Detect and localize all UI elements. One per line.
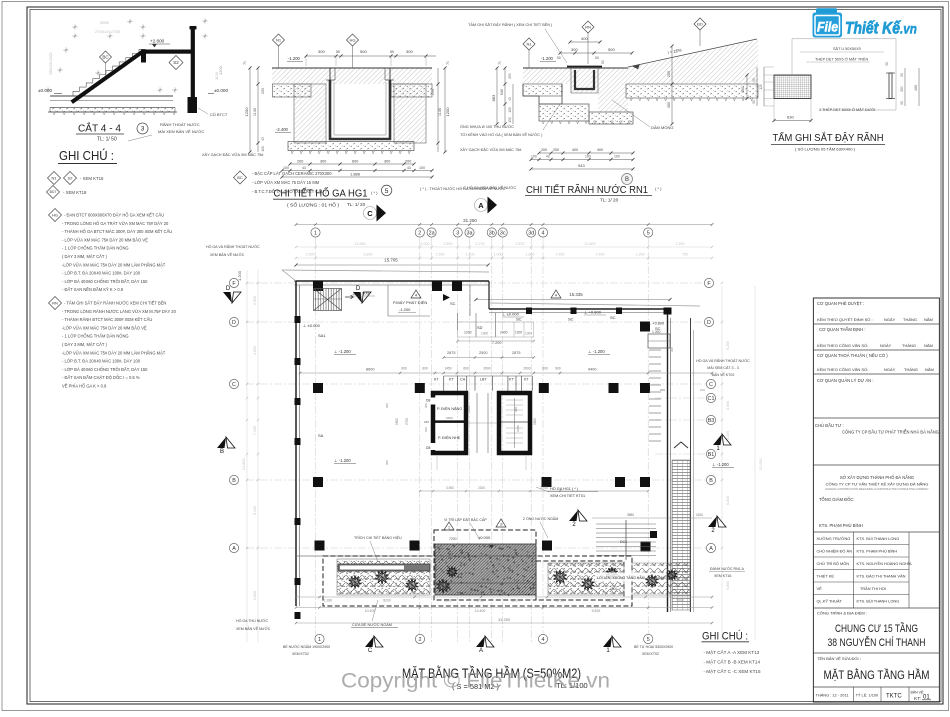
svg-text:2300: 2300 xyxy=(444,599,452,603)
svg-text:KTS. NGUYỄN HOÀNG NGHĨA: KTS. NGUYỄN HOÀNG NGHĨA xyxy=(857,561,913,566)
svg-text:-1.200: -1.200 xyxy=(288,56,301,61)
svg-text:900: 900 xyxy=(555,367,561,371)
svg-text:43: 43 xyxy=(302,166,306,170)
svg-text:.vn: .vn xyxy=(900,22,917,37)
svg-text:D: D xyxy=(232,320,236,326)
svg-text:2.450: 2.450 xyxy=(556,253,565,257)
svg-text:4: 4 xyxy=(542,637,545,643)
svg-text:100: 100 xyxy=(700,388,705,392)
svg-text:2400: 2400 xyxy=(516,425,520,432)
svg-text:943: 943 xyxy=(578,163,585,168)
svg-text:- LỚP VỮA XM MÁC 75 DÀY 15 MM: - LỚP VỮA XM MÁC 75 DÀY 15 MM xyxy=(252,180,320,185)
svg-text:300: 300 xyxy=(320,160,326,164)
svg-text:1130: 1130 xyxy=(253,108,257,116)
svg-text:- MẶT CẮT B -B XEM KT14: - MẶT CẮT B -B XEM KT14 xyxy=(704,658,761,665)
svg-text:SC: SC xyxy=(516,317,522,322)
svg-text:S2: S2 xyxy=(68,175,74,180)
svg-text:File: File xyxy=(817,20,838,35)
svg-text:KÈM THEO CÔNG VĂN SỐ:: KÈM THEO CÔNG VĂN SỐ: xyxy=(817,367,868,372)
svg-text:Thiết Kế: Thiết Kế xyxy=(845,19,901,38)
svg-text:HỐ GA HG1 ( * ): HỐ GA HG1 ( * ) xyxy=(550,486,579,491)
svg-text:D8: D8 xyxy=(426,446,430,450)
svg-text:6.200: 6.200 xyxy=(726,341,730,350)
svg-text:2400: 2400 xyxy=(500,331,508,335)
svg-text:300: 300 xyxy=(318,49,325,54)
svg-text:B: B xyxy=(709,478,713,484)
svg-text:THIẾT KẾ: THIẾT KẾ xyxy=(817,574,835,579)
svg-text:CƠ QUAN THOẢ THUẬN ( NẾU CÓ ): CƠ QUAN THOẢ THUẬN ( NẾU CÓ ) xyxy=(817,353,888,358)
svg-text:2: 2 xyxy=(419,637,422,643)
svg-text:SA: SA xyxy=(318,433,324,438)
svg-text:100: 100 xyxy=(261,146,265,152)
svg-text:⊥ -1.200: ⊥ -1.200 xyxy=(334,458,351,463)
svg-text:3c: 3c xyxy=(500,230,506,236)
svg-text:1200: 1200 xyxy=(464,331,472,335)
svg-text:300: 300 xyxy=(406,49,413,54)
svg-text:3b: 3b xyxy=(489,230,495,236)
svg-text:1.500: 1.500 xyxy=(436,253,445,257)
svg-text:KTS. ĐÀO THỊ THANH VÂN: KTS. ĐÀO THỊ THANH VÂN xyxy=(857,574,906,579)
svg-text:NĂM: NĂM xyxy=(924,343,933,348)
svg-text:100: 100 xyxy=(419,166,425,170)
svg-text:6.800: 6.800 xyxy=(726,496,730,505)
svg-text:200: 200 xyxy=(553,148,559,152)
svg-text:43: 43 xyxy=(508,97,512,101)
svg-text:ĐD: ĐD xyxy=(697,21,703,26)
svg-text:5.800: 5.800 xyxy=(364,253,373,257)
svg-text:3.600: 3.600 xyxy=(726,401,730,410)
svg-text:2600: 2600 xyxy=(446,416,453,420)
svg-text:2 ỐNG NƯỚC NGẦM: 2 ỐNG NƯỚC NGẦM xyxy=(523,516,558,521)
svg-text:7.200: 7.200 xyxy=(492,341,502,345)
svg-text:3: 3 xyxy=(500,523,502,527)
svg-text:100: 100 xyxy=(585,155,591,159)
svg-text:2a: 2a xyxy=(429,230,435,236)
svg-text:13.950: 13.950 xyxy=(355,242,366,246)
svg-text:C: C xyxy=(368,648,373,654)
svg-text:1.000: 1.000 xyxy=(494,253,503,257)
svg-text:5825: 5825 xyxy=(606,599,614,603)
svg-text:- MẶT CẮT A -A XEM KT13: - MẶT CẮT A -A XEM KT13 xyxy=(704,648,760,655)
svg-text:-LỚP VỮA XM MÁC 75# DÀY 20 MM: -LỚP VỮA XM MÁC 75# DÀY 20 MM LÀM PHẲNG … xyxy=(62,262,166,267)
svg-text:LỐI LÊN, XUỐNG TẦNG HẦM: LỐI LÊN, XUỐNG TẦNG HẦM xyxy=(597,575,645,580)
svg-text:CHUNG CƯ 15 TẦNG: CHUNG CƯ 15 TẦNG xyxy=(835,622,918,635)
svg-text:±0.000: ±0.000 xyxy=(38,88,52,93)
svg-text:5.825: 5.825 xyxy=(592,609,601,613)
svg-text:900: 900 xyxy=(424,403,428,408)
svg-text:⊥ +0.800: ⊥ +0.800 xyxy=(584,310,602,315)
svg-text:6.800: 6.800 xyxy=(253,591,257,600)
svg-text:150: 150 xyxy=(508,117,512,123)
svg-text:883: 883 xyxy=(491,94,496,101)
svg-text:THÉP DẸT 50X5 Ở MẶT TRÊN: THÉP DẸT 50X5 Ở MẶT TRÊN xyxy=(815,57,868,62)
svg-text:B: B xyxy=(232,478,236,484)
svg-text:KTS. PHẠM PHÚ BÌNH: KTS. PHẠM PHÚ BÌNH xyxy=(857,549,898,554)
svg-text:TỚI KÊNH VÀO HỐ GA ( XEM BẢN V: TỚI KÊNH VÀO HỐ GA ( XEM BẢN VẼ NƯỚC ) xyxy=(460,132,543,137)
svg-text:250: 250 xyxy=(431,89,435,95)
svg-text:A: A xyxy=(478,201,484,210)
svg-text:KT': KT' xyxy=(509,378,515,382)
svg-text:CÔNG TY CP TƯ VẤN THIẾT KẾ XÂY: CÔNG TY CP TƯ VẤN THIẾT KẾ XÂY DỰNG ĐÀ N… xyxy=(826,482,929,487)
svg-text:400: 400 xyxy=(597,148,603,152)
svg-text:SA1: SA1 xyxy=(318,333,326,338)
svg-text:CHỦ ĐẦU TƯ :: CHỦ ĐẦU TƯ : xyxy=(815,423,844,428)
svg-text:N1: N1 xyxy=(526,41,532,46)
svg-text:900: 900 xyxy=(385,403,389,408)
svg-text:HỐ GA THU NƯỚC: HỐ GA THU NƯỚC xyxy=(236,618,268,623)
svg-text:1300: 1300 xyxy=(525,332,532,336)
svg-text:KT:: KT: xyxy=(914,696,921,702)
svg-text:22.800: 22.800 xyxy=(242,458,246,470)
svg-text:RN: RN xyxy=(585,24,591,29)
svg-text:1200: 1200 xyxy=(445,107,450,117)
svg-text:1.500: 1.500 xyxy=(676,242,685,246)
svg-text:600: 600 xyxy=(424,427,428,432)
svg-text:QL.KỸ THUẬT: QL.KỸ THUẬT xyxy=(817,599,843,604)
svg-text:31.250: 31.250 xyxy=(463,218,477,223)
svg-text:9400: 9400 xyxy=(588,368,596,372)
svg-text:±0.000: ±0.000 xyxy=(478,535,491,540)
svg-text:300: 300 xyxy=(571,47,578,52)
svg-text:5800: 5800 xyxy=(395,418,399,425)
svg-text:1: 1 xyxy=(314,230,317,236)
svg-text:10.400: 10.400 xyxy=(475,609,486,613)
svg-text:A: A xyxy=(479,648,483,654)
svg-text:1100: 1100 xyxy=(696,513,703,517)
svg-text:200: 200 xyxy=(660,388,665,392)
svg-text:CHỦ TRÌ BỘ MÔN: CHỦ TRÌ BỘ MÔN xyxy=(817,561,850,566)
svg-text:7200: 7200 xyxy=(449,537,457,541)
svg-text:THÁNG: THÁNG xyxy=(902,343,916,348)
svg-text:CƠ QUAN QUẢN LÝ DỰ ÁN :: CƠ QUAN QUẢN LÝ DỰ ÁN : xyxy=(817,378,874,383)
svg-text:6.800: 6.800 xyxy=(726,581,730,590)
svg-text:( SỐ LƯỢNG : 01 HỐ ): ( SỐ LƯỢNG : 01 HỐ ) xyxy=(287,203,340,208)
svg-text:TKTC: TKTC xyxy=(886,694,902,700)
svg-text:B3: B3 xyxy=(708,418,715,424)
svg-text:B: B xyxy=(220,449,224,455)
svg-text:2.400: 2.400 xyxy=(596,253,605,257)
svg-text:125: 125 xyxy=(759,84,763,90)
svg-text:10.500: 10.500 xyxy=(585,242,596,246)
svg-text:250: 250 xyxy=(424,420,429,424)
svg-text:1000: 1000 xyxy=(511,599,519,603)
svg-text:70: 70 xyxy=(243,61,247,65)
svg-text:( * ): ( * ) xyxy=(655,186,662,191)
svg-text:KÈM THEO CÔNG VĂN SỐ:: KÈM THEO CÔNG VĂN SỐ: xyxy=(817,343,868,348)
svg-text:THÁNG : 12 - 2011: THÁNG : 12 - 2011 xyxy=(816,693,849,698)
svg-text:XEM BẢN VẼ NƯỚC: XEM BẢN VẼ NƯỚC xyxy=(210,252,245,257)
svg-text:1.886: 1.886 xyxy=(350,172,361,177)
svg-text:NGÀY: NGÀY xyxy=(884,367,896,372)
svg-text:NĂM: NĂM xyxy=(924,317,933,322)
svg-text:CÔNG TY CP ĐẦU TƯ PHÁT TRIỂN N: CÔNG TY CP ĐẦU TƯ PHÁT TRIỂN NHÀ ĐÀ NẴNG xyxy=(842,430,939,435)
svg-text:900: 900 xyxy=(401,367,407,371)
svg-text:1450: 1450 xyxy=(444,367,451,371)
svg-text:2500: 2500 xyxy=(479,351,487,355)
svg-text:50: 50 xyxy=(601,60,605,64)
svg-text:300: 300 xyxy=(384,160,390,164)
svg-text:XÂY GẠCH ĐẶC VỮA XM MÁC 75#: XÂY GẠCH ĐẶC VỮA XM MÁC 75# xyxy=(460,147,522,152)
svg-text:630: 630 xyxy=(787,115,794,120)
svg-text:CÔNG TRÌNH & ĐỊA ĐIỂM :: CÔNG TRÌNH & ĐỊA ĐIỂM : xyxy=(817,611,867,616)
svg-text:S2: S2 xyxy=(173,60,179,65)
svg-text:2.275: 2.275 xyxy=(476,242,485,246)
svg-text:1.500: 1.500 xyxy=(306,253,315,257)
svg-text:TRẦN THỊ HỢI: TRẦN THỊ HỢI xyxy=(860,586,886,591)
svg-text:2700: 2700 xyxy=(405,418,409,425)
svg-text:1130: 1130 xyxy=(438,108,442,116)
svg-text:195X15=2925: 195X15=2925 xyxy=(49,53,53,75)
svg-text:ĐD7: ĐD7 xyxy=(50,190,57,194)
svg-text:2.950: 2.950 xyxy=(253,296,257,305)
svg-text:CHI TIẾT HỐ GA HG1: CHI TIẾT HỐ GA HG1 xyxy=(274,186,368,200)
svg-text:...C HỐ GA XEM BẢN VẼ NƯỚC: ...C HỐ GA XEM BẢN VẼ NƯỚC xyxy=(460,185,517,190)
svg-text:600: 600 xyxy=(542,367,548,371)
svg-text:50: 50 xyxy=(336,50,340,54)
svg-text:⊥ -1.200: ⊥ -1.200 xyxy=(712,462,729,467)
svg-text:⊥ +0.800: ⊥ +0.800 xyxy=(648,322,664,326)
svg-text:- LỚP VỮA XM MÁC 75# DÀY 20 MM: - LỚP VỮA XM MÁC 75# DÀY 20 MM BẢO VỆ xyxy=(62,237,148,242)
svg-text:1.200: 1.200 xyxy=(466,253,475,257)
svg-text:CH: CH xyxy=(460,378,466,382)
svg-text:TL: 1/ 50: TL: 1/ 50 xyxy=(97,137,117,143)
svg-text:CƠ QUAN THẨM ĐỊNH :: CƠ QUAN THẨM ĐỊNH : xyxy=(819,327,866,332)
svg-text:350: 350 xyxy=(900,86,904,92)
svg-text:±0.000: ±0.000 xyxy=(214,88,228,93)
svg-text:SC: SC xyxy=(610,315,616,320)
svg-text:- TRONG LÒNG RÃNH NƯỚC LÁNG VỮ: - TRONG LÒNG RÃNH NƯỚC LÁNG VỮA XM M.75#… xyxy=(62,309,177,314)
svg-text:270X10=2700: 270X10=2700 xyxy=(95,29,121,34)
svg-text:-LỚP VỮA XM MÁC 75# DÀY 20 MM: -LỚP VỮA XM MÁC 75# DÀY 20 MM LÀM PHẲNG … xyxy=(62,350,166,355)
svg-text:⊥ -1.200: ⊥ -1.200 xyxy=(334,349,351,354)
svg-text:HG: HG xyxy=(52,212,58,217)
svg-text:1.200: 1.200 xyxy=(237,270,242,281)
svg-text:ỐNG NHỰA Ø 100 THU NƯỚC: ỐNG NHỰA Ø 100 THU NƯỚC xyxy=(460,124,514,129)
svg-text:XEM KT16: XEM KT16 xyxy=(714,574,731,578)
svg-text:3.950: 3.950 xyxy=(446,486,454,490)
svg-text:A: A xyxy=(709,546,713,552)
svg-text:- LỚP ĐÁ 40X60 CHỐNG TRỒI ĐẤT: - LỚP ĐÁ 40X60 CHỐNG TRỒI ĐẤT, DÀY 150 xyxy=(62,279,148,284)
svg-text:- TRONG LÒNG HỐ GA TRÁT VỮA XM: - TRONG LÒNG HỐ GA TRÁT VỮA XM MÁC 75# D… xyxy=(62,221,169,226)
svg-text:- THÀNH RÃNH BTCT MÁC 300# XEM: - THÀNH RÃNH BTCT MÁC 300# XEM KẾT CẤU xyxy=(62,317,152,322)
svg-text:70: 70 xyxy=(446,61,450,65)
svg-text:600: 600 xyxy=(422,367,428,371)
svg-text:⊥ ±0.800: ⊥ ±0.800 xyxy=(352,291,370,296)
svg-text:750: 750 xyxy=(682,253,688,257)
svg-text:1.200: 1.200 xyxy=(636,253,645,257)
svg-text:⊥ ±0.000: ⊥ ±0.000 xyxy=(502,312,520,317)
svg-text:100: 100 xyxy=(508,107,512,113)
svg-text:SC: SC xyxy=(568,317,574,322)
svg-text:RN: RN xyxy=(52,300,58,305)
svg-text:2: 2 xyxy=(418,230,421,236)
svg-text:70: 70 xyxy=(498,61,502,65)
svg-text:BC: BC xyxy=(237,175,243,180)
svg-text:50: 50 xyxy=(900,73,904,77)
svg-text:( DÀY 3 MM, MẶT CẮT ): ( DÀY 3 MM, MẶT CẮT ) xyxy=(62,254,107,259)
svg-text:300: 300 xyxy=(514,407,518,412)
svg-text:500: 500 xyxy=(360,49,367,54)
svg-text:- LỚP B.T. ĐÁ 20X40 MÁC 100#,: - LỚP B.T. ĐÁ 20X40 MÁC 100#, DÀY 100 xyxy=(62,271,141,276)
svg-text:THÁNG: THÁNG xyxy=(904,367,918,372)
svg-text:ĐÁNH NƯỚC RN1 A: ĐÁNH NƯỚC RN1 A xyxy=(710,566,745,571)
svg-text:7.150: 7.150 xyxy=(253,426,257,435)
svg-text:4500: 4500 xyxy=(610,587,617,591)
svg-text:XÂY GẠCH ĐẶC VỮA XM MÁC 75#: XÂY GẠCH ĐẶC VỮA XM MÁC 75# xyxy=(202,152,264,157)
svg-text:VẼ: VẼ xyxy=(817,586,823,591)
svg-text:3d: 3d xyxy=(528,230,534,236)
svg-text:D: D xyxy=(226,286,231,292)
svg-text:900: 900 xyxy=(385,460,389,465)
svg-text:NGÀY: NGÀY xyxy=(884,317,896,322)
svg-text:TẤM GHI SẮT ĐẬY RÃNH: TẤM GHI SẮT ĐẬY RÃNH xyxy=(773,131,884,144)
svg-text:P.MÁY PHÁT ĐIỆN: P.MÁY PHÁT ĐIỆN xyxy=(393,300,427,305)
svg-text:NGÀY: NGÀY xyxy=(880,343,892,348)
svg-text:1130: 1130 xyxy=(215,72,219,80)
svg-text:1300: 1300 xyxy=(481,332,488,336)
svg-text:3750: 3750 xyxy=(556,599,564,603)
svg-text:KTS. BÙI THANH LONG: KTS. BÙI THANH LONG xyxy=(857,536,900,541)
svg-text:43: 43 xyxy=(261,137,265,141)
svg-text:SẮT U 50X50X5: SẮT U 50X50X5 xyxy=(833,46,861,51)
svg-text:BC: BC xyxy=(102,55,109,60)
svg-text:MẶT BẰNG TẦNG HẦM: MẶT BẰNG TẦNG HẦM xyxy=(824,667,930,682)
svg-text:- TẤM GHI SẮT ĐẬY RÃNH NƯỚC XE: - TẤM GHI SẮT ĐẬY RÃNH NƯỚC XEM CHI TIẾT… xyxy=(64,301,166,306)
svg-text:XEM KT02: XEM KT02 xyxy=(292,652,309,656)
svg-text:250: 250 xyxy=(261,88,265,94)
svg-text:XƯỞNG TRƯỞNG: XƯỞNG TRƯỞNG xyxy=(817,536,851,541)
svg-text:2.600: 2.600 xyxy=(444,242,453,246)
svg-text:SỞ XÂY DỰNG THÀNH PHỐ ĐÀ NẴNG: SỞ XÂY DỰNG THÀNH PHỐ ĐÀ NẴNG xyxy=(840,475,914,480)
svg-text:GHI CHÚ :: GHI CHÚ : xyxy=(702,630,748,643)
svg-text:C: C xyxy=(709,382,713,388)
svg-text:⊥ +0.840: ⊥ +0.840 xyxy=(652,576,666,580)
svg-text:DẦM MÓNG: DẦM MÓNG xyxy=(651,125,673,130)
svg-text:( SỐ LƯỢNG 05 TẤM 630X400 ): ( SỐ LƯỢNG 05 TẤM 630X400 ) xyxy=(795,147,856,152)
svg-text:CHI TIẾT RÃNH NƯỚC RN1: CHI TIẾT RÃNH NƯỚC RN1 xyxy=(526,183,648,196)
svg-text:- LỚP ĐÁ 40X60 CHỐNG TRỒI ĐẤT: - LỚP ĐÁ 40X60 CHỐNG TRỒI ĐẤT, DÀY 150 xyxy=(62,367,148,372)
svg-text:1950: 1950 xyxy=(467,405,471,412)
svg-text:3900: 3900 xyxy=(100,20,110,25)
svg-text:4: 4 xyxy=(542,230,545,236)
svg-text:200: 200 xyxy=(297,160,303,164)
svg-text:D8: D8 xyxy=(426,399,430,403)
svg-text:1.300: 1.300 xyxy=(652,330,661,334)
svg-text:CHỦ NHIỆM ĐỒ ÁN: CHỦ NHIỆM ĐỒ ÁN xyxy=(817,549,853,554)
svg-text:P. ĐIỆN NHẸ: P. ĐIỆN NHẸ xyxy=(438,435,461,440)
svg-text:600: 600 xyxy=(463,367,469,371)
svg-text:VỊ TRÍ LẮP ĐẶT BẬC CẤP: VỊ TRÍ LẮP ĐẶT BẬC CẤP xyxy=(444,517,487,522)
svg-text:1: 1 xyxy=(448,526,450,530)
svg-text:B: B xyxy=(625,177,629,183)
svg-text:HG: HG xyxy=(350,37,356,42)
svg-text:TÊN BẢN VẼ SỬA ĐỔI :: TÊN BẢN VẼ SỬA ĐỔI : xyxy=(817,656,861,661)
svg-text:DANANG CONSTRUCTION DESIGNING: DANANG CONSTRUCTION DESIGNING & CONSTRUC… xyxy=(825,487,928,491)
svg-text:KTS. BÙI THANH LONG: KTS. BÙI THANH LONG xyxy=(857,599,900,604)
svg-text:15.705: 15.705 xyxy=(384,258,398,263)
svg-text:15.335: 15.335 xyxy=(569,292,583,297)
svg-text:TRÍCH CHI TIẾT BẢNG HIỆU: TRÍCH CHI TIẾT BẢNG HIỆU xyxy=(354,535,402,540)
svg-text:100: 100 xyxy=(531,155,537,159)
svg-text:- MẶT CẮT C -C XEM KT15: - MẶT CẮT C -C XEM KT15 xyxy=(704,667,761,674)
svg-text:1200: 1200 xyxy=(244,107,249,117)
svg-text:5.100: 5.100 xyxy=(253,506,257,515)
svg-text:2875: 2875 xyxy=(447,351,455,355)
svg-text:⊥ -1.200: ⊥ -1.200 xyxy=(588,349,605,354)
svg-text:SD: SD xyxy=(477,325,483,330)
svg-text:31.050: 31.050 xyxy=(759,458,763,470)
svg-text:KT': KT' xyxy=(449,378,455,382)
svg-text:N1: N1 xyxy=(51,175,57,180)
svg-text:CŨ BTCT: CŨ BTCT xyxy=(210,112,228,117)
svg-text:- ĐAN BTCT 600X600X70 ĐẬY HỐ G: - ĐAN BTCT 600X600X70 ĐẬY HỐ GA XEM KẾT … xyxy=(64,213,164,218)
svg-text:TỶ LỆ: 1/100: TỶ LỆ: 1/100 xyxy=(856,693,880,698)
svg-text:HỐ GA VÀ RÃNH THOÁT NƯỚC: HỐ GA VÀ RÃNH THOÁT NƯỚC xyxy=(206,244,260,249)
svg-text:- XEM KT15: - XEM KT15 xyxy=(80,176,104,181)
svg-text:- 1 LỚP CHỐNG THẤM DÁN NÓNG: - 1 LỚP CHỐNG THẤM DÁN NÓNG xyxy=(62,246,129,251)
svg-text:1.800: 1.800 xyxy=(526,253,535,257)
svg-text:6700: 6700 xyxy=(476,599,484,603)
svg-text:50: 50 xyxy=(900,101,904,105)
svg-text:D: D xyxy=(707,320,711,326)
svg-text:50: 50 xyxy=(557,56,561,60)
svg-text:100: 100 xyxy=(283,166,289,170)
svg-text:-LỚP VỮA XM MÁC 75# DÀY 20 MM: -LỚP VỮA XM MÁC 75# DÀY 20 MM BẢO VỆ xyxy=(62,325,147,330)
svg-text:DC1: DC1 xyxy=(620,540,627,544)
svg-text:- ĐẤT SAN ĐẦM CHẶT ĐỘ DỐC I =: - ĐẤT SAN ĐẦM CHẶT ĐỘ DỐC I = 0.5 % xyxy=(62,375,140,380)
svg-text:400: 400 xyxy=(572,148,578,152)
svg-text:50: 50 xyxy=(595,56,599,60)
svg-text:2 THÉP DẸT 50X5 Ở MẶT DƯỚI: 2 THÉP DẸT 50X5 Ở MẶT DƯỚI xyxy=(819,107,875,112)
svg-text:250: 250 xyxy=(667,71,671,77)
svg-text:VỀ PHÍA HỐ GA K > 0.9: VỀ PHÍA HỐ GA K > 0.9 xyxy=(62,384,107,389)
svg-text:A: A xyxy=(232,546,236,552)
svg-text:43: 43 xyxy=(546,155,550,159)
svg-text:RÃNH THOÁT NƯỚC: RÃNH THOÁT NƯỚC xyxy=(160,122,200,127)
svg-text:8200: 8200 xyxy=(383,599,391,603)
svg-text:KT: KT xyxy=(434,378,439,382)
svg-text:BỂ TỰ HOẠI 5300X2900: BỂ TỰ HOẠI 5300X2900 xyxy=(634,644,673,649)
svg-text:B1: B1 xyxy=(708,452,715,458)
svg-text:XEM BẢN VẼ NƯỚC: XEM BẢN VẼ NƯỚC xyxy=(236,626,271,631)
svg-text:5: 5 xyxy=(385,188,389,195)
svg-text:50: 50 xyxy=(885,62,889,66)
svg-text:200: 200 xyxy=(405,160,411,164)
svg-text:1.280: 1.280 xyxy=(324,599,332,603)
svg-text:250: 250 xyxy=(508,73,512,79)
svg-text:3a: 3a xyxy=(467,230,473,236)
svg-text:1200: 1200 xyxy=(515,331,522,335)
svg-text:1: 1 xyxy=(318,637,321,643)
svg-text:400: 400 xyxy=(741,87,745,93)
svg-text:8600: 8600 xyxy=(366,368,374,372)
svg-text:MÁI XEM BẢN VẼ NƯỚC: MÁI XEM BẢN VẼ NƯỚC xyxy=(158,129,205,134)
svg-text:200: 200 xyxy=(541,148,547,152)
svg-text:+2.800: +2.800 xyxy=(150,39,165,44)
svg-text:KÈM THEO QUYẾT ĐỊNH SỐ :: KÈM THEO QUYẾT ĐỊNH SỐ : xyxy=(817,317,873,322)
svg-text:4.650: 4.650 xyxy=(253,346,257,355)
svg-text:BỂ NƯỚC NGẦM 1900X2900: BỂ NƯỚC NGẦM 1900X2900 xyxy=(283,644,330,649)
svg-text:HỐ GA VÀ RÃNH THOÁT NƯỚC: HỐ GA VÀ RÃNH THOÁT NƯỚC xyxy=(696,358,750,363)
svg-text:5800: 5800 xyxy=(533,418,537,425)
svg-text:-1.200: -1.200 xyxy=(541,56,554,61)
svg-text:C: C xyxy=(232,382,236,388)
svg-text:MÁI XEM CẮT 3 - 3: MÁI XEM CẮT 3 - 3 xyxy=(707,365,739,370)
svg-text:3000: 3000 xyxy=(676,599,684,603)
svg-text:SC: SC xyxy=(450,301,456,306)
svg-text:3: 3 xyxy=(141,126,145,133)
svg-text:10.400: 10.400 xyxy=(365,609,376,613)
